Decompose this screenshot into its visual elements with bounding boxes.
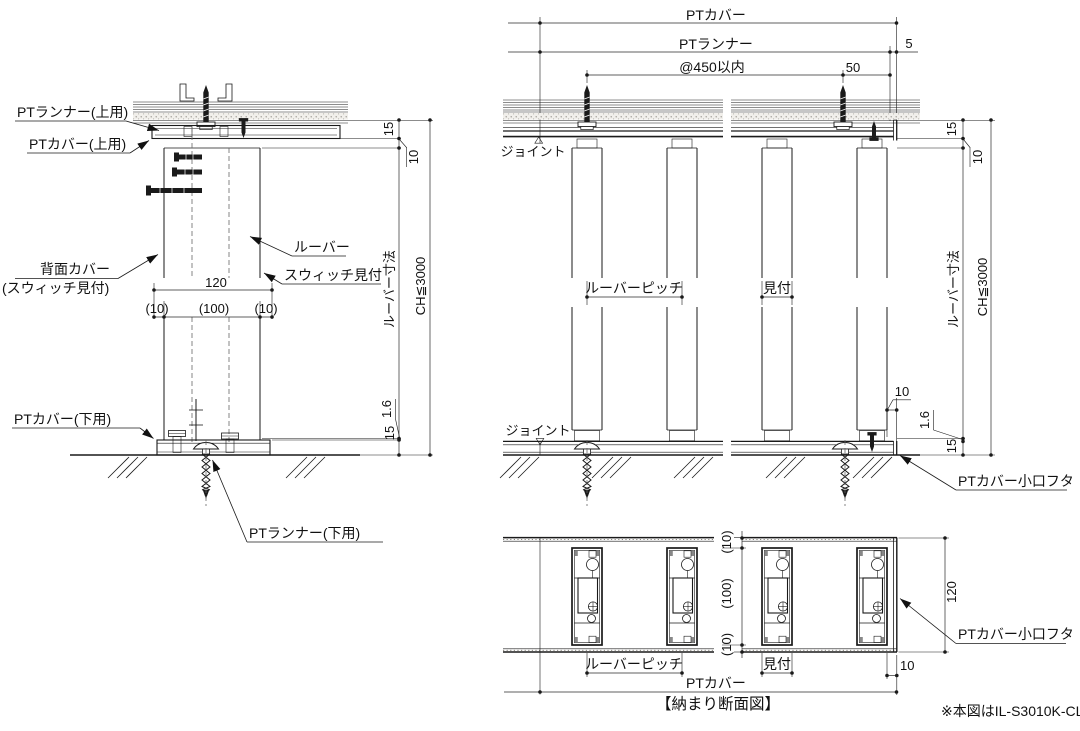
dim-louver-length: ルーバー寸法 (382, 250, 397, 328)
ceiling-channel-right-leg (218, 84, 232, 101)
floor-hatch (592, 457, 631, 478)
dim-end-clearance: 10 (895, 384, 909, 399)
dim-louver-pitch: ルーバーピッチ (585, 656, 683, 672)
label-pt-runner-bottom: PTランナー(下用) (249, 525, 360, 541)
louver-cross-section (857, 548, 887, 645)
width-dimension: 120 (10) (100) (10) (145, 275, 277, 319)
floor-hatch (286, 457, 325, 478)
dim-cover-gap: 10 (406, 150, 421, 164)
dim-ceiling-height: CH≦3000 (975, 258, 990, 317)
elevation-height-dimension-chain: 15 10 ルーバー寸法 CH≦3000 1.6 15 (897, 118, 995, 457)
dim-width-right: (10) (254, 301, 277, 316)
ceiling-channel-left-leg (180, 84, 194, 101)
ceiling-screw-icon (197, 85, 215, 130)
dim-bottom-gap: 1.6 (379, 400, 394, 418)
floor-hatch (853, 457, 892, 478)
floor-anchor-icon (575, 440, 600, 506)
label-joint-bottom: ジョイント (505, 423, 570, 438)
floor-hatch (500, 457, 539, 478)
drawing-title: 【納まり断面図】 (656, 695, 780, 713)
plan-bottom-dimensions: ルーバーピッチ 見付 10 PTカバー (504, 653, 914, 695)
plan-end-cap-callout: PTカバー小口フタ (900, 599, 1074, 644)
dim-end-offset: 5 (905, 36, 912, 51)
label-back-cover: 背面カバー (40, 261, 110, 277)
label-pt-runner-top: PTランナー(上用) (17, 104, 128, 120)
left-section-view: 120 (10) (100) (10) 15 10 ルーバー寸法 (2, 84, 433, 542)
top-dimensions: PTカバー PTランナー 5 @450以内 50 (508, 7, 918, 143)
dim-louver-pitch: ルーバーピッチ (585, 280, 683, 296)
plan-cover-outline (503, 538, 897, 695)
drawing-note: ※本図はIL-S3010K-CL (941, 703, 1080, 719)
floor-hatch (674, 457, 713, 478)
dim-top-clearance: 15 (381, 122, 396, 136)
top-runner-assembly (152, 118, 340, 138)
left-height-dimension-chain: 15 10 ルーバー寸法 CH≦3000 1.6 15 (262, 118, 433, 457)
dim-bottom-clearance: 15 (382, 426, 397, 440)
dim-width-center: (100) (199, 301, 229, 316)
dim-screw-pitch: @450以内 (679, 59, 745, 75)
label-back-cover-sub: (スウィッチ見付) (2, 280, 109, 296)
dim-louver-face: 見付 (763, 656, 791, 672)
plan-section-view: (10) (100) (10) 120 ルーバーピッチ 見付 10 PTカバー … (503, 530, 1074, 695)
floor-anchor-icon (833, 440, 858, 506)
label-pt-cover-top: PTカバー(上用) (29, 136, 126, 152)
technical-drawing-page: 120 (10) (100) (10) 15 10 ルーバー寸法 (0, 0, 1080, 731)
label-switch-face: スウィッチ見付 (284, 267, 382, 283)
floor-hatch (766, 457, 805, 478)
front-elevation-view: PTカバー PTランナー 5 @450以内 50 ジョイント (500, 7, 1074, 506)
dim-screw-end-offset: 50 (846, 60, 860, 75)
mid-dimensions: ルーバーピッチ 見付 (585, 280, 794, 305)
louver-cross-section (762, 548, 792, 645)
dim-depth-total: 120 (944, 581, 959, 603)
dim-louver-face: 見付 (763, 280, 791, 296)
dim-cover-gap: 10 (970, 150, 985, 164)
floor-hatch (108, 457, 147, 478)
label-cover-end-cap: PTカバー小口フタ (958, 473, 1074, 489)
louver-cross-section (667, 548, 697, 645)
dim-depth-top: (10) (719, 530, 734, 553)
dim-bottom-gap: 1.6 (917, 411, 932, 429)
label-pt-cover-bottom: PTカバー(下用) (14, 411, 111, 427)
dim-pt-runner-width: PTランナー (679, 36, 753, 52)
dim-width-total: 120 (205, 275, 227, 290)
louver-bar (857, 139, 887, 441)
louver-column-section (146, 127, 260, 443)
floor-assembly (70, 431, 360, 507)
label-cover-end-cap: PTカバー小口フタ (958, 626, 1074, 642)
label-louver: ルーバー (294, 239, 350, 255)
dim-depth-center: (100) (719, 578, 734, 608)
dim-top-clearance: 15 (944, 122, 959, 136)
joint-marker-top-icon (535, 137, 543, 143)
dim-pt-cover-width: PTカバー (686, 675, 746, 691)
label-joint-top: ジョイント (500, 144, 565, 159)
dim-width-left: (10) (145, 301, 168, 316)
elevation-end-cap-callout: PTカバー小口フタ (900, 456, 1074, 491)
dim-end-clearance: 10 (900, 658, 914, 673)
louver-cross-section (572, 548, 602, 645)
dim-bottom-clearance: 15 (944, 439, 959, 453)
dim-ceiling-height: CH≦3000 (413, 257, 428, 316)
drawing-canvas: 120 (10) (100) (10) 15 10 ルーバー寸法 (0, 0, 1080, 731)
dim-pt-cover-width: PTカバー (686, 7, 746, 23)
floor-anchor-icon (194, 440, 219, 506)
dim-depth-bottom: (10) (719, 633, 734, 656)
plan-depth-dimension: (10) (100) (10) 120 (719, 530, 959, 658)
back-cover-screws (146, 153, 202, 196)
dim-louver-length: ルーバー寸法 (946, 250, 961, 328)
